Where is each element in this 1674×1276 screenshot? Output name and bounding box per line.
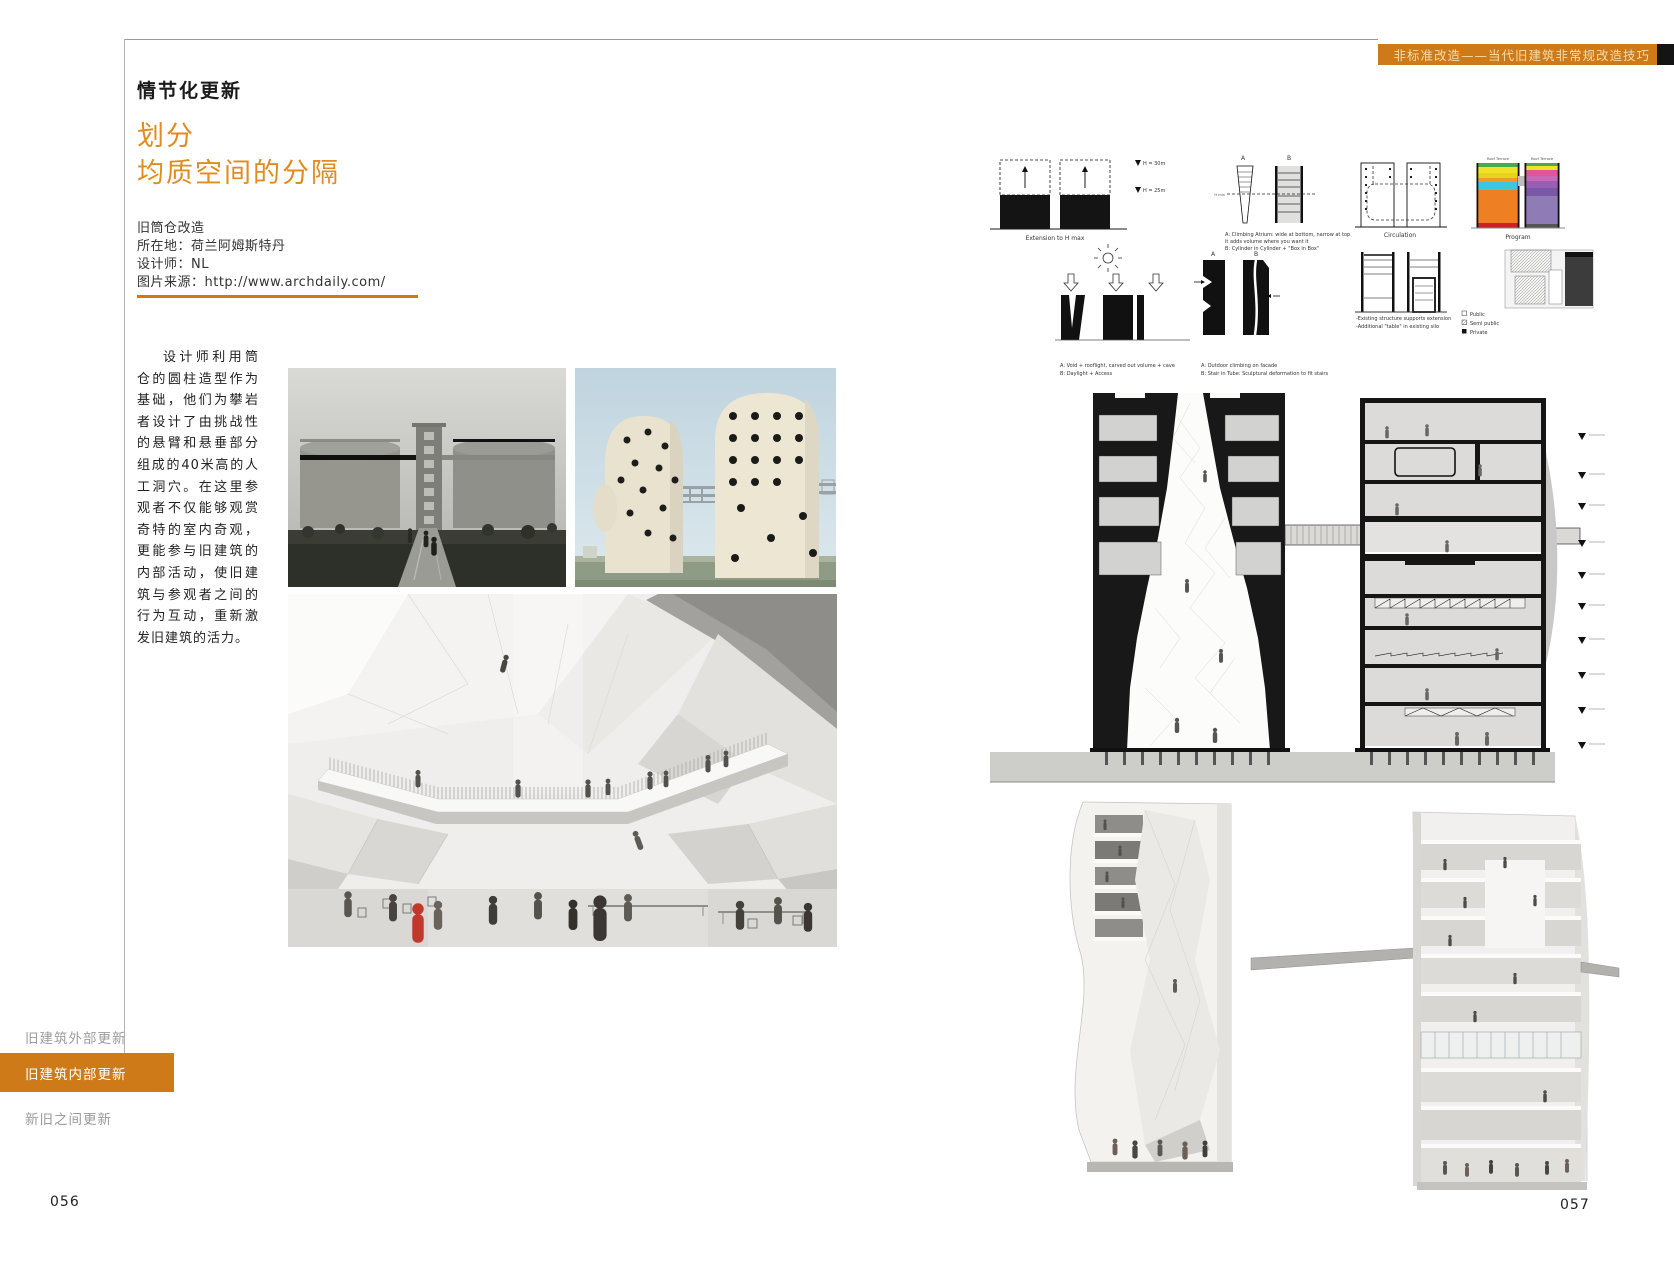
project-location: 所在地：荷兰阿姆斯特丹 <box>137 238 386 256</box>
caption-circulation: Circulation <box>1384 232 1416 239</box>
accent-rule <box>137 295 418 298</box>
diagram-program <box>1471 163 1565 228</box>
label-h30: H = 30m <box>1143 161 1165 167</box>
project-name: 旧筒仓改造 <box>137 220 386 238</box>
section-floors-tower <box>1360 398 1557 750</box>
diagram-climbing <box>1194 260 1280 335</box>
sidebar-item-exterior-renewal: 旧建筑外部更新 <box>25 1027 127 1047</box>
caption-extension: Extension to H max <box>1026 235 1085 242</box>
legend-private: Private <box>1470 330 1487 336</box>
header-title: 非标准改造——当代旧建筑非常规改造技巧 <box>1393 45 1650 64</box>
sidebar-item-interior-renewal: 旧建筑内部更新 <box>0 1053 174 1092</box>
cross-beam-left <box>1251 948 1415 970</box>
page-title-line1: 划分 <box>137 118 340 155</box>
letter-b: B <box>1287 155 1291 162</box>
caption-atrium-3: B: Cylinder in Cylinder + "Box in Box" <box>1225 246 1319 252</box>
section-drawings <box>975 358 1625 790</box>
tower-right <box>715 393 819 578</box>
render-climbing-cave-interior <box>288 594 837 947</box>
child-in-red <box>412 903 423 943</box>
photo-silos-renovated <box>575 368 836 587</box>
silo-left <box>300 439 400 528</box>
section-cave-tower <box>1093 393 1285 750</box>
climbing-letter-a: A <box>1211 251 1216 258</box>
caption-atrium-1: A: Climbing Atrium: wide at bottom, narr… <box>1225 232 1350 238</box>
letter-a: A <box>1241 155 1246 162</box>
program-tower-right <box>1525 163 1560 228</box>
book-spread: 非标准改造——当代旧建筑非常规改造技巧 情节化更新 划分 均质空间的分隔 旧筒仓… <box>0 0 1674 1276</box>
climbing-letter-b: B <box>1254 251 1258 258</box>
header-bar: 非标准改造——当代旧建筑非常规改造技巧 <box>1378 44 1657 65</box>
legend-public: Public <box>1470 312 1485 318</box>
render-section-model-right <box>1245 800 1625 1195</box>
left-margin-rule <box>124 39 125 1053</box>
level-markers <box>1578 433 1605 749</box>
diagram-plan <box>1505 250 1593 308</box>
page-title-line2: 均质空间的分隔 <box>137 155 340 192</box>
body-paragraph: 设计师利用筒仓的圆柱造型作为基础，他们为攀岩者设计了由挑战性的悬臂和悬垂部分组成… <box>137 347 259 649</box>
diagram-daylight <box>1055 244 1190 340</box>
project-designer: 设计师：NL <box>137 256 386 274</box>
caption-program: Program <box>1505 234 1530 241</box>
section-label: 情节化更新 <box>137 76 242 103</box>
caption-structure-2: -Additional "table" in existing silo <box>1356 324 1439 330</box>
silo-right <box>453 439 555 528</box>
photo-silos-foggy <box>288 368 566 587</box>
header-end-block <box>1657 44 1674 65</box>
diagram-circulation <box>1355 163 1447 227</box>
label-h25: H = 25m <box>1143 188 1165 194</box>
page-number-right: 057 <box>1560 1197 1590 1213</box>
header-rule <box>124 39 1378 40</box>
figure-long-coat <box>593 895 606 941</box>
legend-semi-public: Semi public <box>1470 321 1499 327</box>
roof-terrace-label-2: Roof Terrace <box>1531 157 1554 161</box>
diagram-atrium <box>1227 166 1315 223</box>
plan-legend <box>1462 311 1467 334</box>
label-hmin: H min <box>1214 193 1225 197</box>
model-floor-bands <box>1421 840 1581 1182</box>
page-title: 划分 均质空间的分隔 <box>137 118 340 192</box>
sidebar-item-between-renewal: 新旧之间更新 <box>25 1108 112 1128</box>
page-number-left: 056 <box>50 1194 80 1210</box>
caption-atrium-2: it adds volume where you want it <box>1225 239 1309 245</box>
diagram-structure <box>1355 252 1447 312</box>
caption-structure-1: -Existing structure supports extension <box>1356 316 1451 322</box>
project-source: 图片来源：http://www.archdaily.com/ <box>137 274 386 292</box>
project-info: 旧筒仓改造 所在地：荷兰阿姆斯特丹 设计师：NL 图片来源：http://www… <box>137 220 386 292</box>
diagram-extension <box>990 160 1141 229</box>
program-tower-left <box>1477 163 1520 228</box>
sidebar-item-interior-renewal-label: 旧建筑内部更新 <box>25 1063 127 1083</box>
concept-diagrams: H = 30m H = 25m Extension to H max A B H… <box>975 128 1625 383</box>
render-section-model-left <box>995 790 1255 1175</box>
roof-terrace-label-1: Roof Terrace <box>1487 157 1510 161</box>
ground-strip <box>990 748 1555 782</box>
